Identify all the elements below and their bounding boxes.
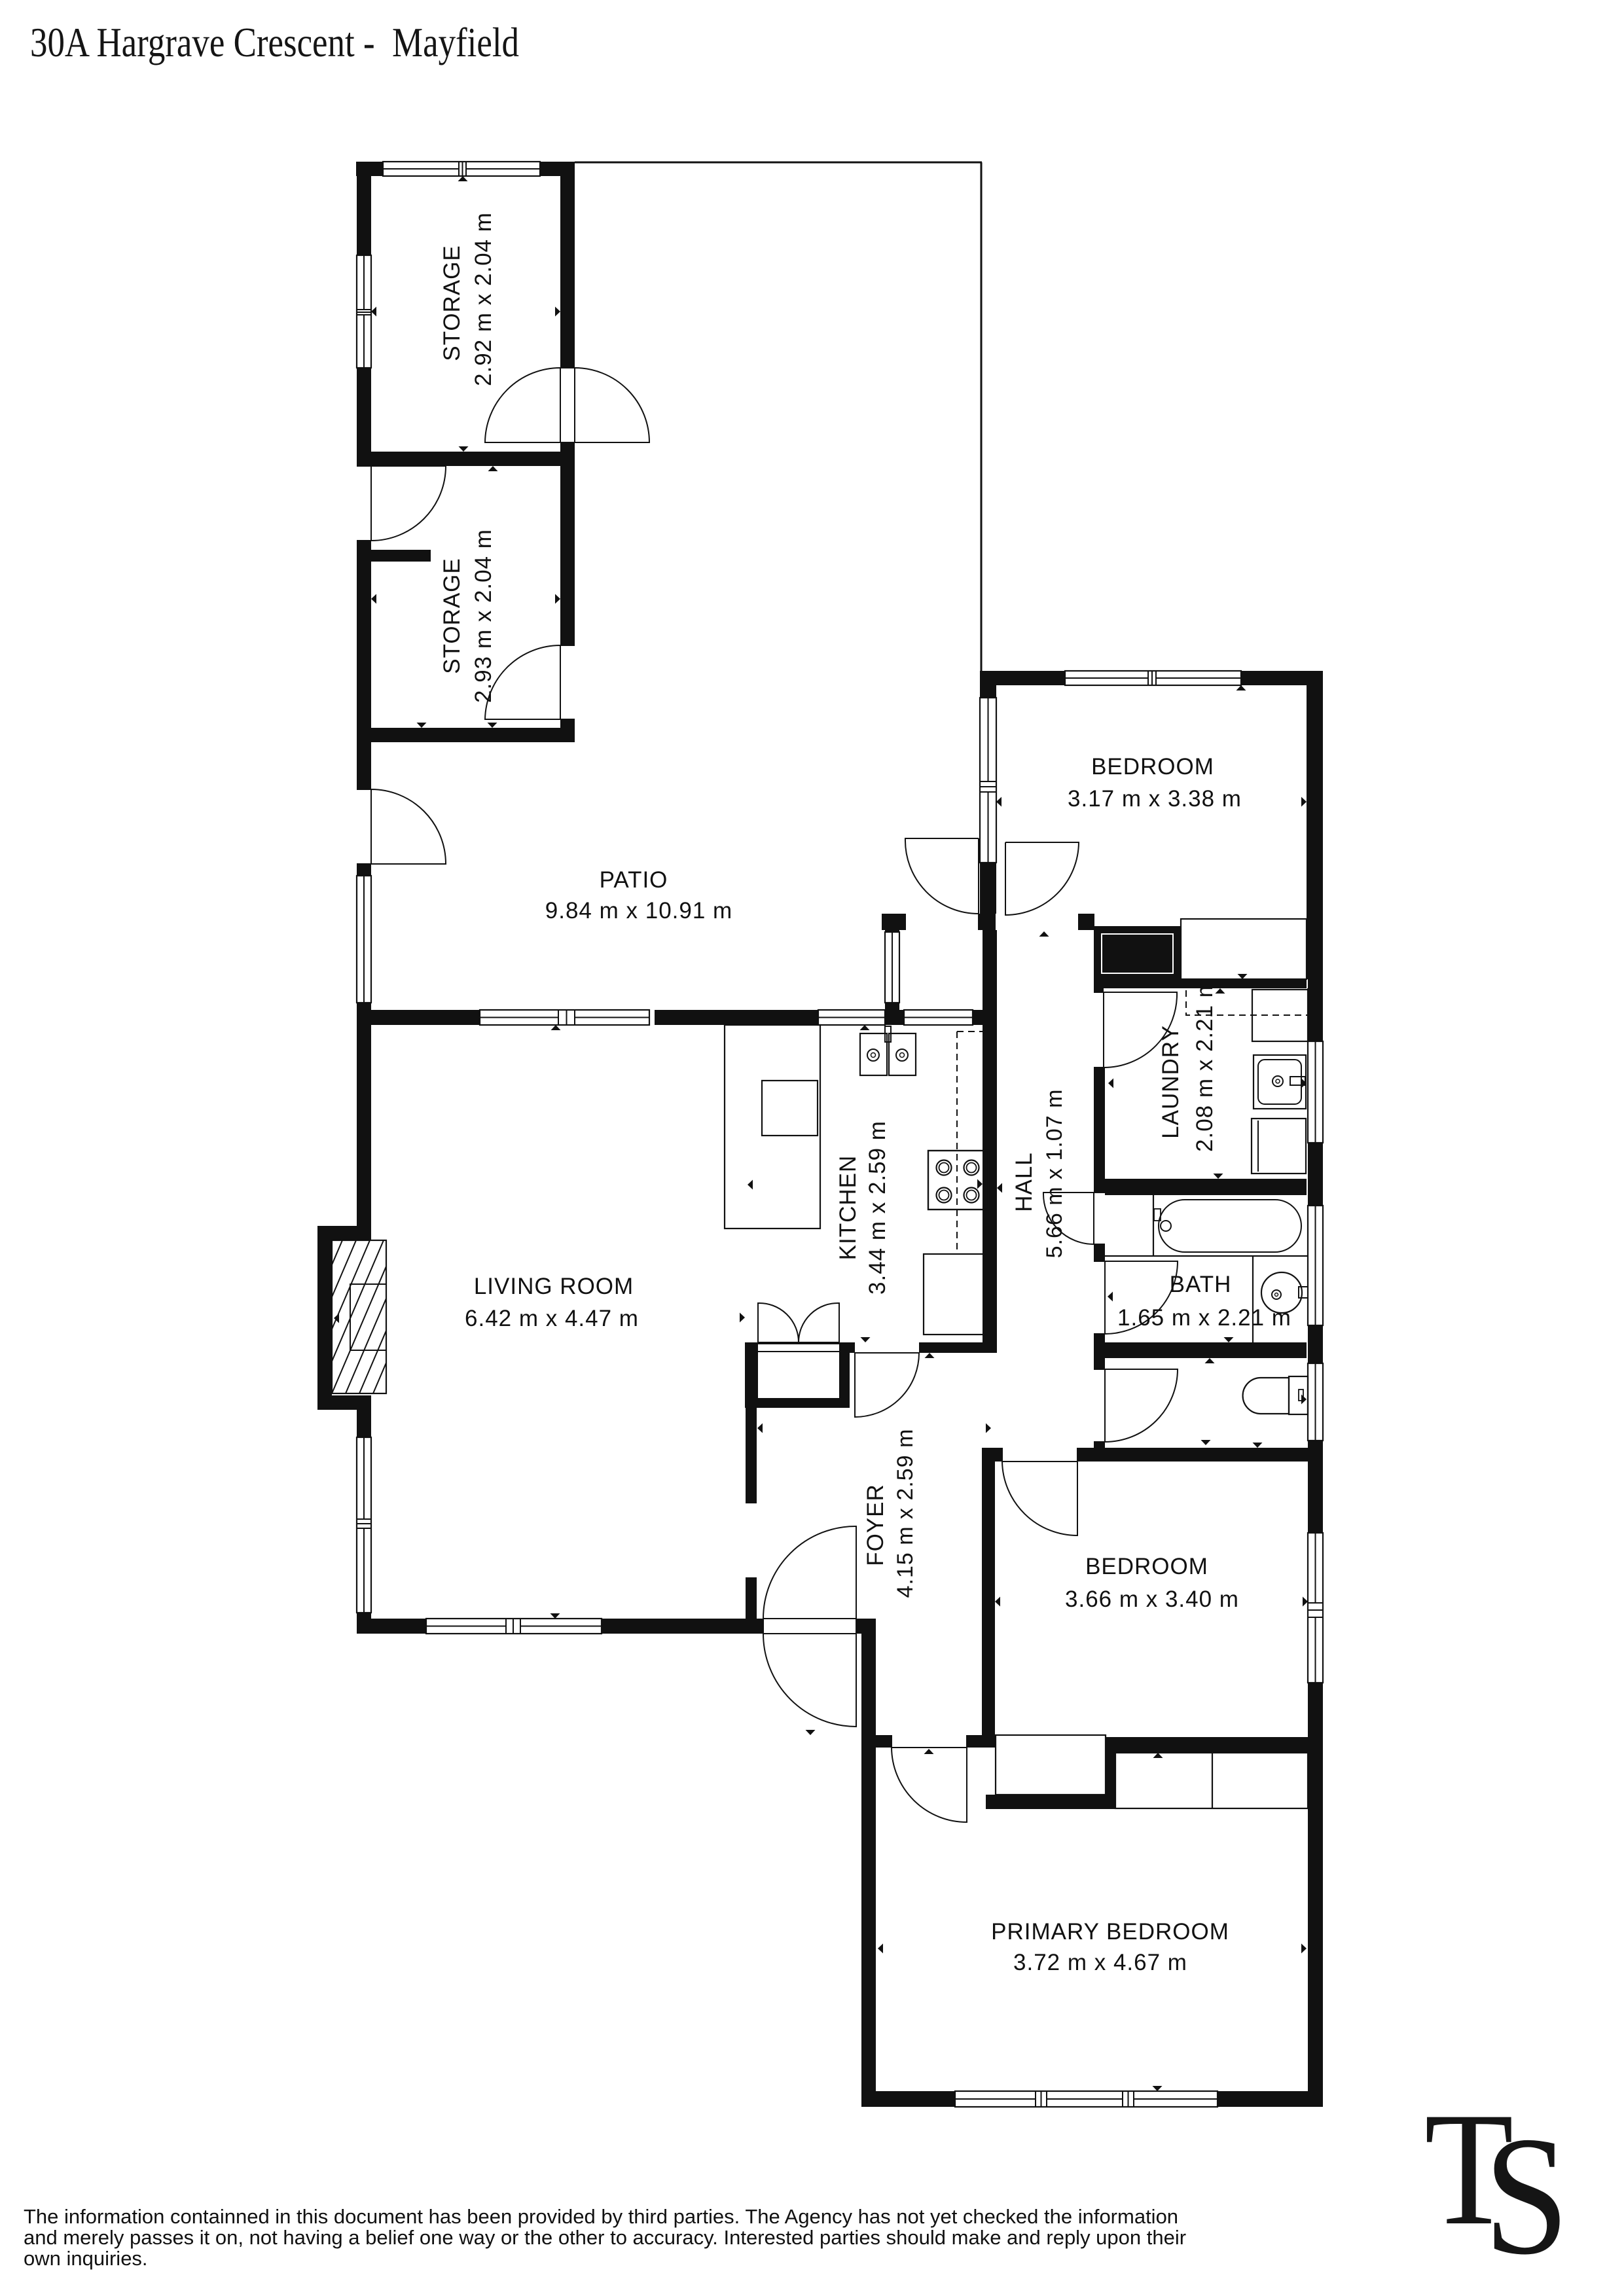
svg-text:2.93 m x 2.04 m: 2.93 m x 2.04 m [471, 529, 496, 703]
svg-text:4.15 m x 2.59 m: 4.15 m x 2.59 m [893, 1429, 918, 1598]
svg-text:BEDROOM: BEDROOM [1091, 754, 1214, 780]
svg-text:3.72 m x 4.67 m: 3.72 m x 4.67 m [1013, 1950, 1187, 1975]
svg-text:FOYER: FOYER [863, 1484, 888, 1566]
svg-text:1.65 m x 2.21 m: 1.65 m x 2.21 m [1117, 1305, 1291, 1331]
svg-text:9.84 m x 10.91 m: 9.84 m x 10.91 m [545, 898, 732, 924]
svg-text:STORAGE: STORAGE [439, 245, 465, 361]
svg-text:3.66 m x 3.40 m: 3.66 m x 3.40 m [1065, 1587, 1239, 1612]
svg-text:PRIMARY BEDROOM: PRIMARY BEDROOM [991, 1919, 1229, 1945]
svg-text:2.08 m x 2.21 m: 2.08 m x 2.21 m [1192, 978, 1218, 1152]
svg-text:PATIO: PATIO [600, 867, 668, 893]
svg-text:2.92 m x 2.04 m: 2.92 m x 2.04 m [471, 212, 496, 386]
svg-text:LAUNDRY: LAUNDRY [1158, 1025, 1183, 1139]
svg-text:KITCHEN: KITCHEN [835, 1155, 861, 1261]
svg-text:HALL: HALL [1011, 1152, 1037, 1212]
svg-text:STORAGE: STORAGE [439, 558, 465, 674]
svg-text:BATH: BATH [1170, 1272, 1232, 1297]
svg-text:5.66 m x 1.07 m: 5.66 m x 1.07 m [1042, 1089, 1067, 1259]
svg-text:3.44 m x 2.59 m: 3.44 m x 2.59 m [865, 1121, 890, 1295]
svg-text:LIVING ROOM: LIVING ROOM [474, 1274, 634, 1299]
svg-text:6.42 m x 4.47 m: 6.42 m x 4.47 m [465, 1306, 639, 1331]
svg-text:BEDROOM: BEDROOM [1085, 1554, 1208, 1579]
svg-text:3.17 m x 3.38 m: 3.17 m x 3.38 m [1068, 786, 1242, 812]
